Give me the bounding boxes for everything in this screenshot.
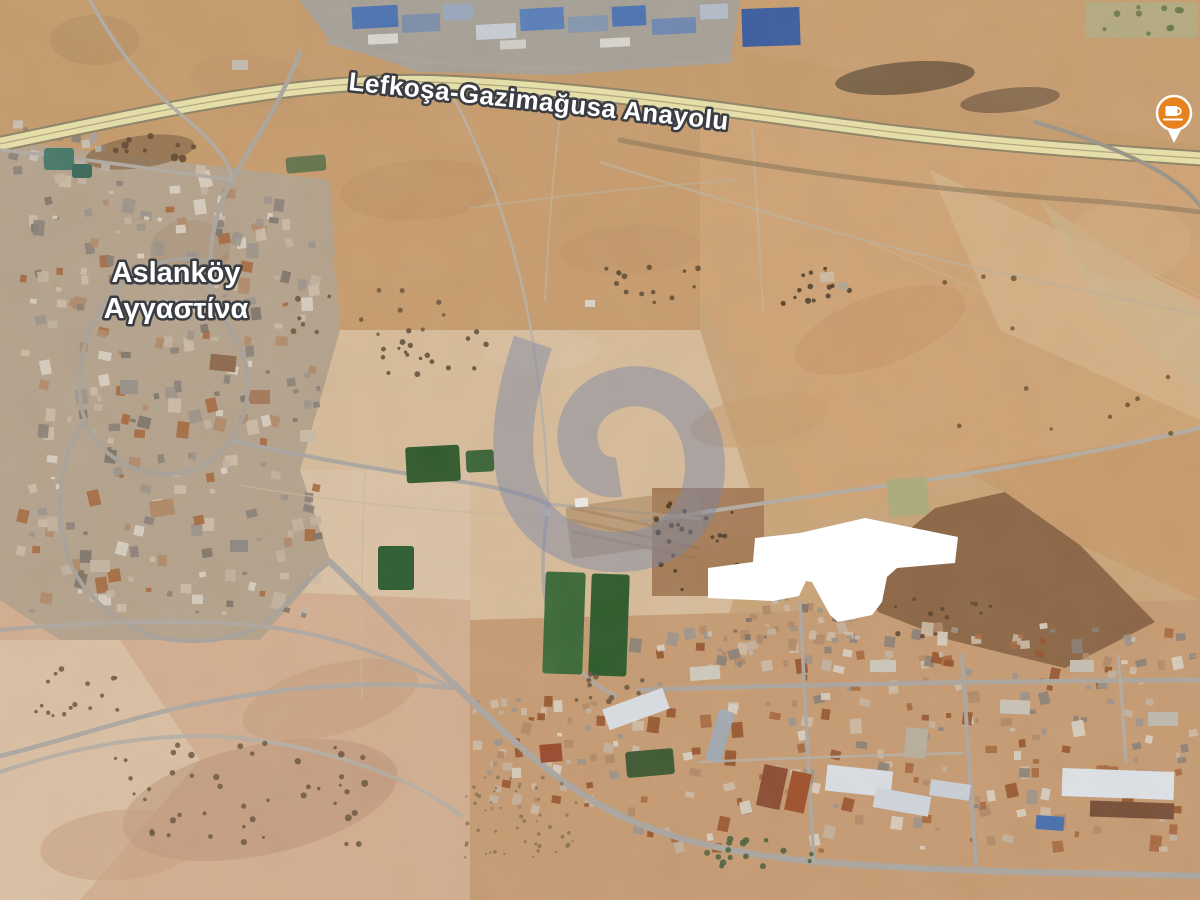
- place-label-line1: Aslanköy: [112, 257, 241, 289]
- coffee-cup-icon: [1166, 106, 1178, 116]
- satellite-map-view: Lefkoşa-Gazimağusa Anayolu Aslanköy Αγγα…: [0, 0, 1200, 900]
- place-label-line2: Αγγαστίνα: [104, 293, 249, 325]
- satellite-map: Lefkoşa-Gazimağusa Anayolu Aslanköy Αγγα…: [0, 0, 1200, 900]
